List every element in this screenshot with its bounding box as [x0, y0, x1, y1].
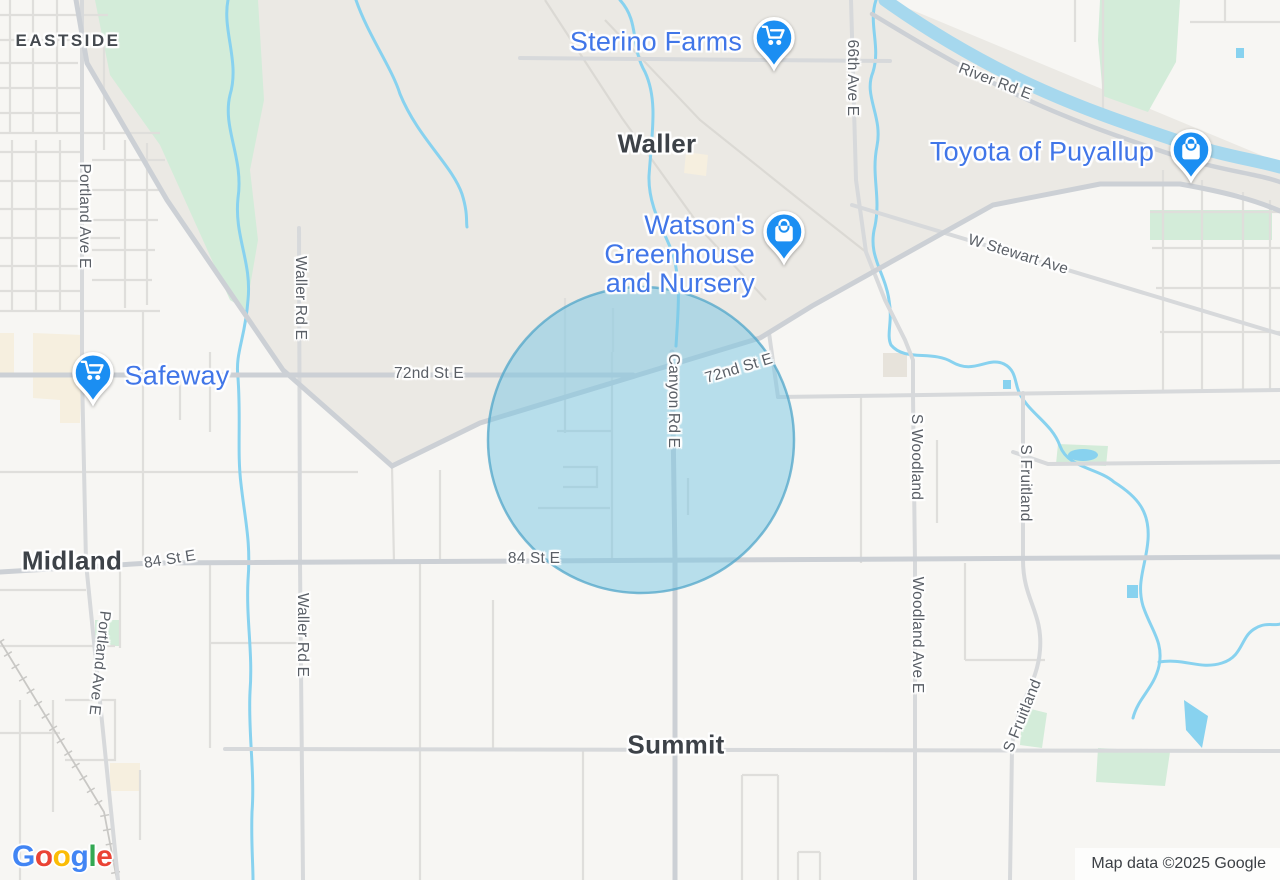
logo-letter: o — [53, 840, 71, 873]
map-labels: EASTSIDE Waller Midland Summit River Rd … — [0, 0, 1280, 880]
town-label-waller: Waller — [618, 129, 697, 160]
logo-letter: g — [71, 840, 89, 873]
google-logo[interactable]: Google — [12, 840, 112, 874]
road-label-84-st-e-left: 84 St E — [143, 547, 197, 573]
poi-label-line1: Watson's Greenhouse — [487, 211, 755, 269]
road-label-s-woodland: S Woodland — [907, 414, 925, 500]
road-label-w-stewart-ave: W Stewart Ave — [966, 231, 1071, 279]
logo-letter: o — [35, 840, 53, 873]
map-attribution: Map data ©2025 Google — [1075, 848, 1280, 880]
town-label-midland: Midland — [22, 546, 122, 577]
logo-letter: l — [88, 840, 96, 873]
road-label-woodland-ave-e: Woodland Ave E — [908, 577, 926, 694]
road-label-canyon-rd-e: Canyon Rd E — [664, 354, 682, 448]
road-label-72nd-st-e-left: 72nd St E — [394, 365, 464, 383]
poi-label-toyota-of-puyallup[interactable]: Toyota of Puyallup — [930, 137, 1154, 168]
road-label-72nd-st-e-right: 72nd St E — [703, 350, 775, 388]
town-label-eastside: EASTSIDE — [15, 31, 120, 51]
road-label-waller-rd-e-bottom: Waller Rd E — [293, 593, 311, 677]
poi-label-line2: and Nursery — [487, 269, 755, 298]
road-label-river-rd-e: River Rd E — [956, 60, 1034, 104]
road-label-66th-ave-e: 66th Ave E — [843, 40, 861, 117]
road-label-waller-rd-e-top: Waller Rd E — [291, 256, 309, 340]
road-label-s-fruitland-top: S Fruitland — [1016, 444, 1034, 521]
poi-label-safeway[interactable]: Safeway — [125, 361, 230, 392]
road-label-portland-ave-e-top: Portland Ave E — [75, 163, 93, 268]
attribution-text: Map data ©2025 Google — [1091, 855, 1266, 873]
map-canvas[interactable]: EASTSIDE Waller Midland Summit River Rd … — [0, 0, 1280, 880]
poi-label-watsons-greenhouse[interactable]: Watson's Greenhouse and Nursery — [487, 211, 755, 298]
logo-letter: e — [96, 840, 112, 873]
logo-letter: G — [12, 840, 35, 873]
town-label-summit: Summit — [627, 730, 724, 761]
poi-label-sterino-farms[interactable]: Sterino Farms — [570, 27, 742, 58]
road-label-84-st-e-center: 84 St E — [508, 550, 560, 568]
road-label-portland-ave-e-bottom: Portland Ave E — [85, 610, 114, 716]
road-label-s-fruitland-bottom: S Fruitland — [1000, 677, 1046, 755]
